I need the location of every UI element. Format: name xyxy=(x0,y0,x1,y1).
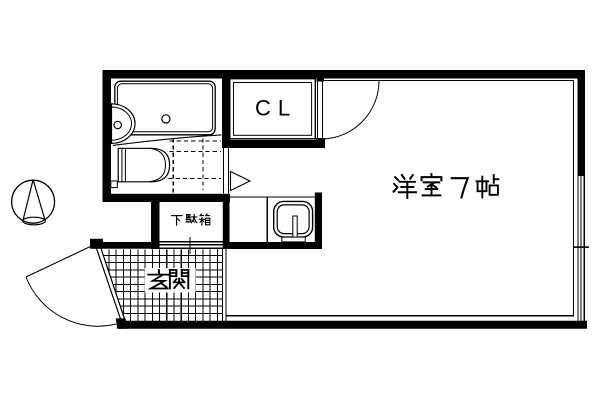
svg-text:CL: CL xyxy=(255,96,297,121)
